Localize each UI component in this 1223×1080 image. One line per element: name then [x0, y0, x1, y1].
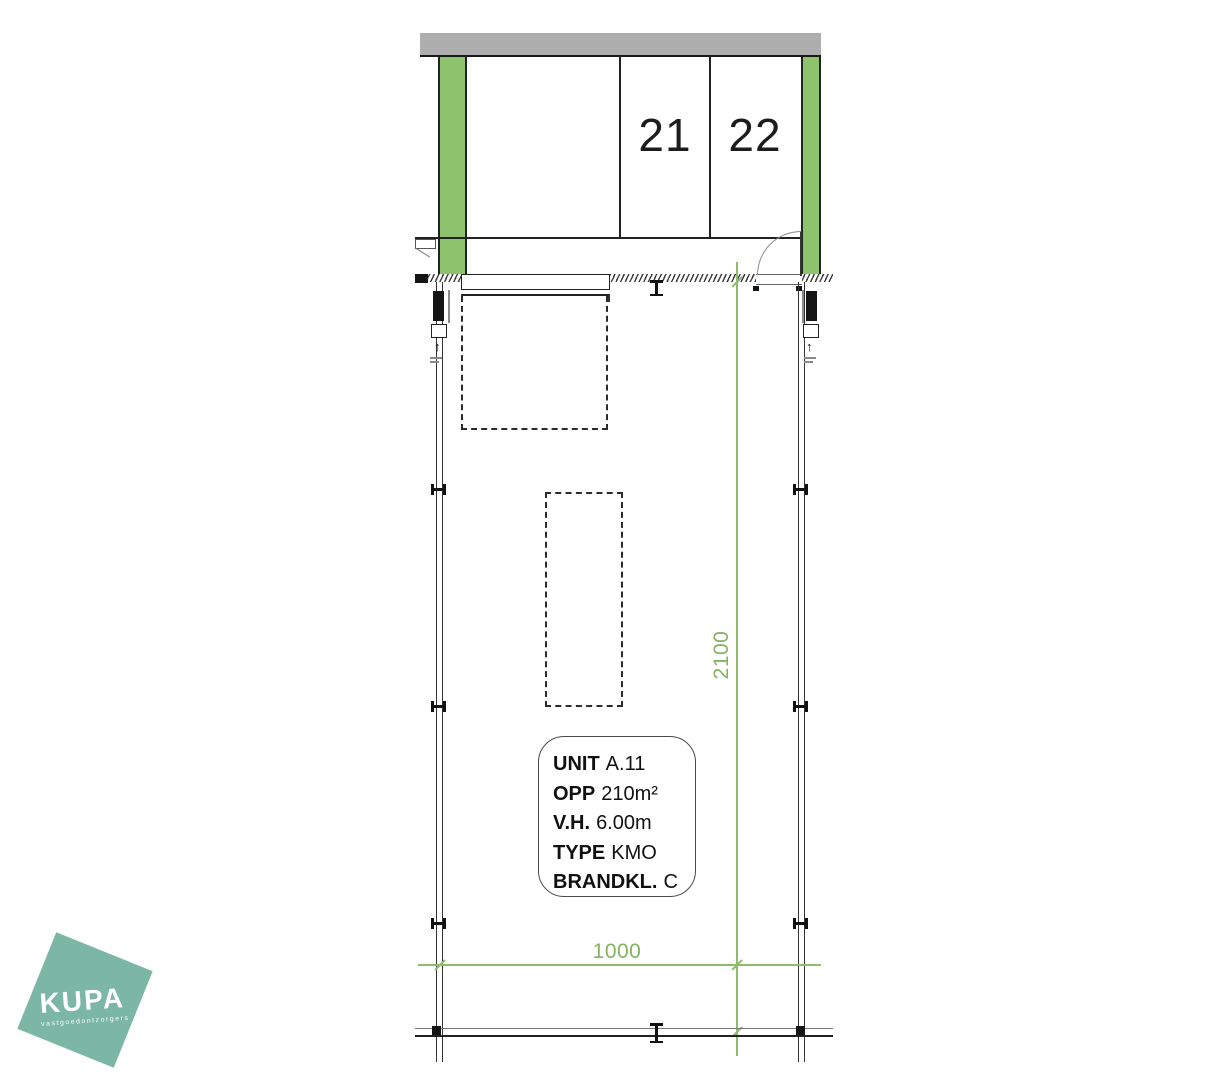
corner-column-block	[432, 1026, 441, 1035]
wall-right-inner	[798, 282, 799, 1062]
utility-micro-label	[430, 361, 439, 363]
neighbor-door-frame	[415, 239, 436, 249]
unit-info-row: OPP210m²	[553, 780, 695, 810]
neighbor-door-swing	[415, 248, 430, 258]
dashed-zone-center	[545, 492, 623, 707]
floorplan-canvas: 21 22 ↑ ↑ 1000 2100	[0, 0, 1223, 1080]
parking-space-21-label: 21	[621, 108, 709, 162]
dimension-label-horizontal: 1000	[567, 940, 667, 964]
area-value: 210m²	[601, 783, 658, 805]
sectional-door-track-end	[608, 294, 610, 302]
dimension-label-vertical: 2100	[697, 630, 747, 680]
bottom-wall-inner-line	[415, 1028, 833, 1029]
corner-column-block	[796, 1026, 805, 1035]
area-label: OPP	[553, 783, 595, 805]
arrow-up-icon: ↑	[434, 340, 441, 353]
unit-info-box: UNITA.11 OPP210m² V.H.6.00m TYPEKMO BRAN…	[538, 736, 696, 897]
unit-info-row: UNITA.11	[553, 750, 695, 780]
unit-info-row: V.H.6.00m	[553, 809, 695, 839]
steel-column-icon	[655, 1023, 658, 1043]
bottom-wall-outer-line	[415, 1035, 833, 1037]
utility-panel	[806, 291, 817, 321]
wall-left-inner	[442, 282, 443, 1062]
height-value: 6.00m	[596, 812, 652, 834]
unit-info-row: TYPEKMO	[553, 839, 695, 869]
fireclass-value: C	[663, 871, 677, 893]
wall-column-tick	[793, 488, 808, 491]
sectional-door	[461, 274, 610, 290]
steel-column-icon	[655, 280, 658, 296]
wall-left-outer	[436, 282, 437, 1062]
utility-panel	[433, 291, 444, 321]
green-strip-right	[801, 57, 821, 274]
utility-meter-box	[431, 324, 447, 338]
utility-micro-label	[804, 357, 816, 359]
wall-column-tick	[793, 705, 808, 708]
wall-column-tick	[431, 705, 446, 708]
wall-right-outer	[804, 282, 805, 1062]
utility-micro-label	[448, 290, 450, 323]
wall-column-tick	[431, 922, 446, 925]
parking-space-22-label: 22	[709, 108, 801, 162]
roadway-bar	[420, 33, 821, 57]
type-value: KMO	[611, 842, 657, 864]
utility-micro-label	[804, 361, 813, 363]
logo-text: KUPA vastgoedontzorgers	[39, 982, 156, 1029]
kupa-logo: KUPA vastgoedontzorgers	[0, 915, 180, 1080]
unit-label: UNIT	[553, 753, 600, 775]
height-label: V.H.	[553, 812, 590, 834]
parking-front-line	[415, 237, 802, 239]
arrow-up-icon: ↑	[806, 340, 813, 353]
fireclass-label: BRANDKL.	[553, 871, 657, 893]
dashed-zone-entry	[461, 296, 608, 430]
utility-micro-label	[430, 357, 442, 359]
utility-meter-box	[803, 324, 819, 338]
unit-value: A.11	[606, 753, 646, 775]
unit-info-row: BRANDKL.C	[553, 868, 695, 898]
type-label: TYPE	[553, 842, 605, 864]
green-strip-left	[438, 57, 467, 274]
entrance-door-sill	[756, 274, 802, 285]
utility-micro-label	[802, 290, 804, 323]
door-jamb-block	[753, 286, 759, 291]
party-wall-core	[415, 274, 428, 283]
wall-column-tick	[793, 922, 808, 925]
dimension-line-horizontal	[418, 964, 821, 966]
wall-column-tick	[431, 488, 446, 491]
